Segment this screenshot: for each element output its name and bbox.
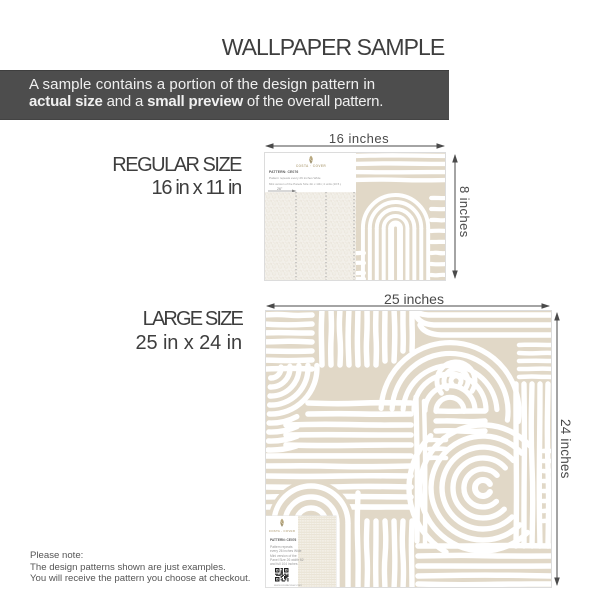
svg-text:26": 26" xyxy=(277,187,283,191)
